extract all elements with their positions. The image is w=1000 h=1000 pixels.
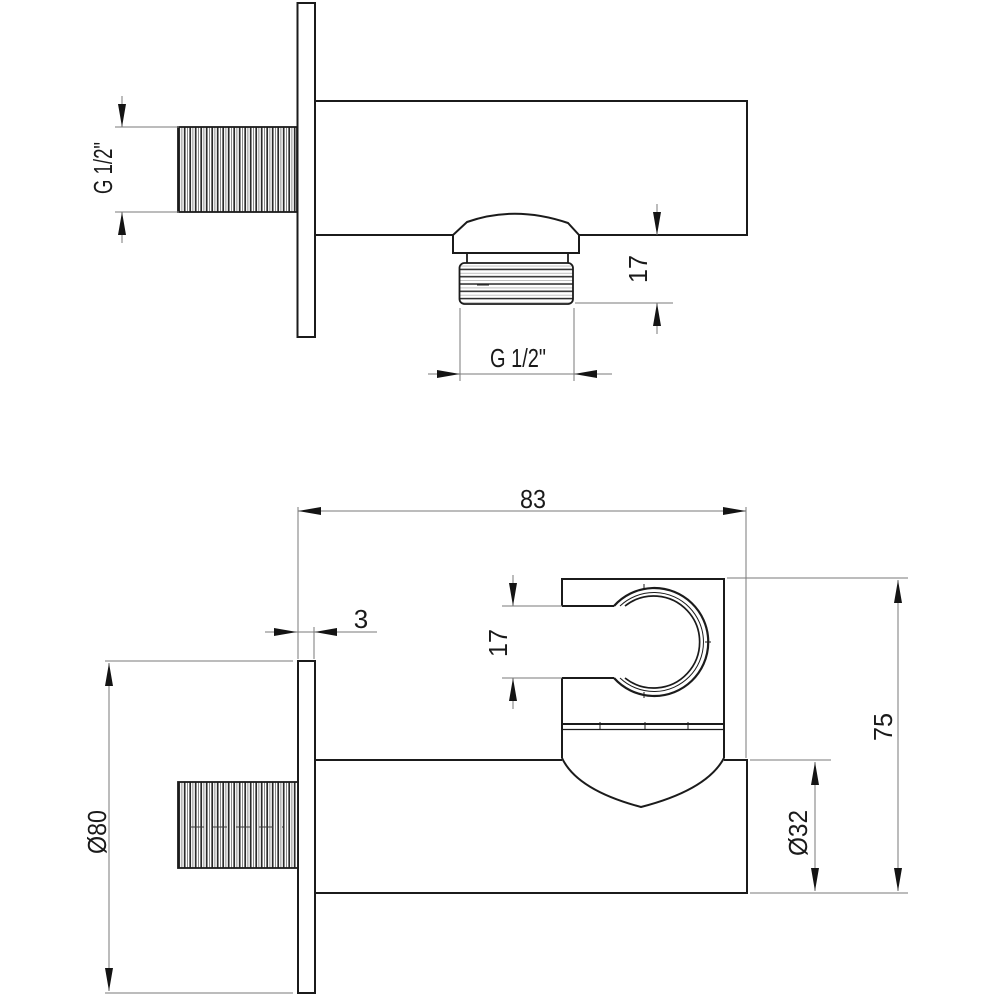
wall-plate-side: [298, 3, 316, 337]
inlet-thread-side: [178, 127, 297, 212]
front-view: 83 3 17 Ø32 75 Ø80: [82, 484, 908, 993]
dim-label-outlet-thread: G 1/2": [490, 343, 546, 373]
dim-label-outlet-length: 17: [623, 255, 653, 283]
dim-label-holder-slot: 17: [483, 629, 513, 657]
dim-holder-slot: 17: [483, 575, 562, 709]
dim-plate-thickness: 3: [265, 604, 377, 659]
drawing-canvas: G 1/2" 17 G 1/2": [0, 0, 1000, 1000]
dim-label-plate-diameter: Ø80: [82, 810, 112, 854]
outlet-neck: [467, 253, 568, 263]
dim-label-inlet-thread: G 1/2": [88, 142, 118, 194]
dim-body-diameter: Ø32: [750, 760, 908, 893]
dim-label-body-diameter: Ø32: [783, 810, 813, 856]
dim-label-width: 83: [520, 484, 546, 514]
technical-drawing-page: G 1/2" 17 G 1/2": [0, 0, 1000, 1000]
inlet-thread-front: [178, 782, 298, 868]
dim-label-height: 75: [868, 713, 898, 741]
dim-inlet-thread: G 1/2": [88, 96, 179, 243]
dim-label-plate-thickness: 3: [354, 604, 368, 634]
outlet-cap: [453, 214, 579, 253]
dim-outlet-thread: G 1/2": [428, 308, 612, 381]
dim-outlet-length: 17: [575, 204, 673, 334]
side-view: G 1/2" 17 G 1/2": [88, 3, 747, 381]
outlet-thread: [460, 263, 574, 304]
dim-height: 75: [727, 578, 908, 891]
wall-plate-front: [298, 661, 315, 993]
